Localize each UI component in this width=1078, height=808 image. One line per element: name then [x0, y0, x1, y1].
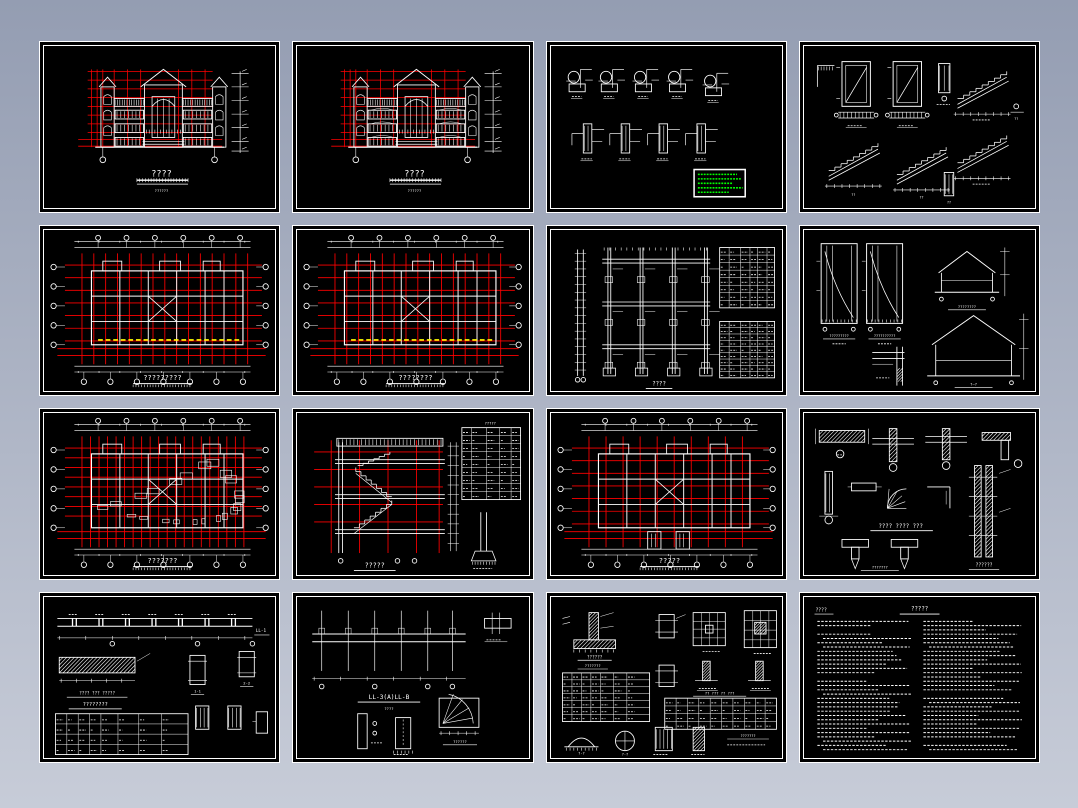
drawing-label: ???????? — [83, 701, 108, 707]
sheet-frame-section: ???? — [546, 225, 787, 397]
drawing-label: ?-? — [621, 752, 627, 756]
drawing-label: ?????? — [975, 563, 992, 569]
drawing-label: ???? ??? ????? — [79, 690, 115, 696]
sheet-roof-sections: ????????????????????????????—? — [799, 225, 1040, 397]
sheet-front-elevation-2: ?????????? — [292, 41, 533, 213]
sheet-beam-ll3-details: LL-3(A)LL-B?????????? — [292, 592, 533, 764]
notes-title: ????? — [911, 606, 928, 612]
drawing-label: 1-1 — [194, 688, 202, 693]
frame-section-drawing: ???? — [553, 232, 780, 390]
scale-note: ?????? — [155, 188, 169, 193]
sheet-title: ???? — [405, 169, 426, 179]
front-elevation-drawing-2: ?????????? — [299, 48, 526, 206]
green-notes-block — [694, 170, 745, 197]
drawing-label: ??????? — [872, 565, 888, 570]
floor-plan-drawing-2: ???????? — [299, 232, 526, 390]
drawing-label: ????????? — [829, 333, 848, 337]
drawing-label: ???? — [385, 705, 394, 710]
sheet-title: ????? — [658, 556, 679, 565]
sheet-title: LL-3(A)LL-B — [369, 694, 410, 701]
drawing-label: ?? — [919, 196, 923, 200]
general-notes-drawing: ????????? — [806, 599, 1033, 757]
foundation-details-drawing: ??????????????? ??? ?? ????-??-???????? — [553, 599, 780, 757]
sheet-connection-details — [546, 41, 787, 213]
structural-details-drawing: ???? ???? ???????????????? — [806, 415, 1033, 573]
sheet-title: ??????? — [148, 556, 178, 565]
sheet-stair-section: ?????????? — [292, 408, 533, 580]
drawing-label: 2-2 — [243, 680, 250, 685]
drawing-label: ????? — [485, 421, 496, 426]
sheet-roof-plan: ????? — [546, 408, 787, 580]
drawing-label: ?? — [947, 201, 951, 205]
front-elevation-drawing-1: ?????????? — [46, 48, 273, 206]
drawing-label: ?—? — [970, 381, 977, 386]
stair-details-drawing: ???????? — [806, 48, 1033, 206]
drawing-label: ?? — [851, 193, 855, 197]
drawing-label: ?????? — [587, 654, 603, 660]
sheet-floor-plan-dense: ??????? — [39, 408, 280, 580]
roof-plan-drawing: ????? — [553, 415, 780, 573]
drawing-label: ???? ???? ??? — [878, 524, 922, 530]
sheet-structural-details: ???? ???? ???????????????? — [799, 408, 1040, 580]
sheet-title: ???? — [151, 169, 172, 179]
roof-sections-drawing: ????????????????????????????—? — [806, 232, 1033, 390]
sheet-foundation-details: ??????????????? ??? ?? ????-??-???????? — [546, 592, 787, 764]
sheet-title: ????? — [365, 562, 385, 570]
drawing-label: ??????? — [740, 734, 755, 738]
drawing-board: ?????????? ?????????? ???????? ?????????… — [26, 33, 1053, 774]
drawing-label: ?-? — [578, 751, 584, 755]
drawing-label: ??????? — [584, 663, 600, 668]
connection-details-drawing — [553, 48, 780, 206]
sheet-title: ???????? — [399, 372, 433, 381]
drawing-label: ?? ??? ?? ??? — [704, 690, 734, 695]
sheet-lintel-beam-details: LL-1???? ??? ?????????????1-12-2 — [39, 592, 280, 764]
sheet-general-notes: ????????? — [799, 592, 1040, 764]
sheet-floor-plan-2: ???????? — [292, 225, 533, 397]
floor-plan-drawing-1: ????????? — [46, 232, 273, 390]
stair-section-drawing: ?????????? — [299, 415, 526, 573]
drawing-label: ?????????? — [874, 333, 896, 337]
sheet-floor-plan-1: ????????? — [39, 225, 280, 397]
drawing-label: ?????? — [453, 738, 467, 743]
floor-plan-dense-drawing: ??????? — [46, 415, 273, 573]
sheet-title: ???? — [652, 381, 666, 387]
scale-note: ?????? — [408, 188, 422, 193]
lintel-beam-drawing: LL-1???? ??? ?????????????1-12-2 — [46, 599, 273, 757]
drawing-label: ???????? — [958, 303, 976, 308]
drawing-label: ?? — [1014, 117, 1018, 121]
notes-corner-label: ???? — [815, 607, 826, 613]
beam-ll3-drawing: LL-3(A)LL-B?????????? — [299, 599, 526, 757]
sheet-title: ????????? — [143, 372, 181, 381]
sheet-stair-details: ???????? — [799, 41, 1040, 213]
sheet-front-elevation-1: ?????????? — [39, 41, 280, 213]
beam-label: LL-1 — [256, 628, 267, 634]
